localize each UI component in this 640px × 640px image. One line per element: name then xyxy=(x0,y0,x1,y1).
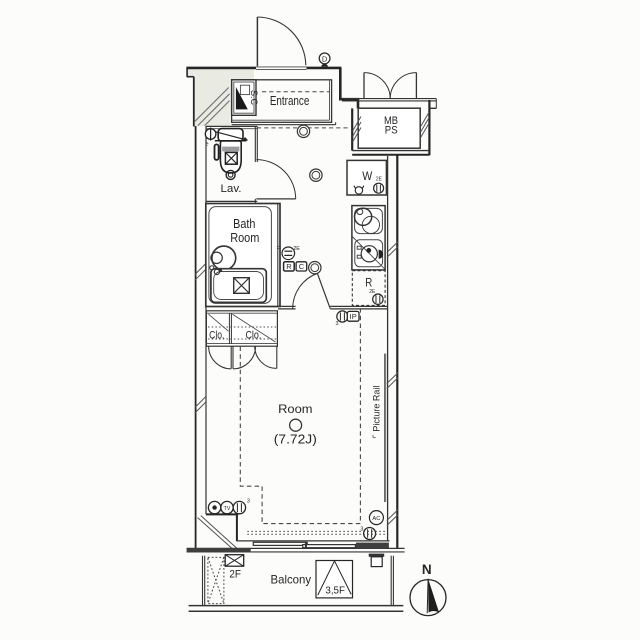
svg-text:Room: Room xyxy=(278,402,312,416)
svg-text:N: N xyxy=(422,562,432,577)
svg-text:R: R xyxy=(286,262,292,271)
svg-text:PS: PS xyxy=(385,125,398,137)
svg-text:3,5F: 3,5F xyxy=(325,586,345,597)
svg-text:Room: Room xyxy=(230,231,259,245)
svg-text:⌜ Picture Rail: ⌜ Picture Rail xyxy=(372,386,382,439)
svg-text:Lav.: Lav. xyxy=(221,183,242,195)
svg-text:AC: AC xyxy=(372,516,380,522)
svg-text:W: W xyxy=(362,169,373,183)
svg-text:Entrance: Entrance xyxy=(270,93,310,108)
svg-text:2E: 2E xyxy=(376,177,383,183)
svg-text:Balcony: Balcony xyxy=(271,572,312,586)
svg-text:C: C xyxy=(299,262,305,271)
svg-text:3: 3 xyxy=(247,498,250,504)
svg-text:Clo.: Clo. xyxy=(209,330,224,342)
svg-text:2E: 2E xyxy=(293,246,300,252)
svg-text:(7.72J): (7.72J) xyxy=(274,433,317,447)
svg-text:D: D xyxy=(322,54,328,63)
svg-text:Clo.: Clo. xyxy=(245,330,261,342)
svg-text:2F: 2F xyxy=(229,568,241,580)
svg-text:IP: IP xyxy=(350,312,357,321)
svg-text:e: e xyxy=(206,141,209,147)
svg-text:TV: TV xyxy=(224,506,231,512)
svg-text:3: 3 xyxy=(335,321,338,327)
svg-text:Bath: Bath xyxy=(233,217,255,231)
svg-text:R: R xyxy=(365,276,372,289)
svg-text:2E: 2E xyxy=(369,289,376,295)
svg-text:S.C: S.C xyxy=(249,90,259,106)
